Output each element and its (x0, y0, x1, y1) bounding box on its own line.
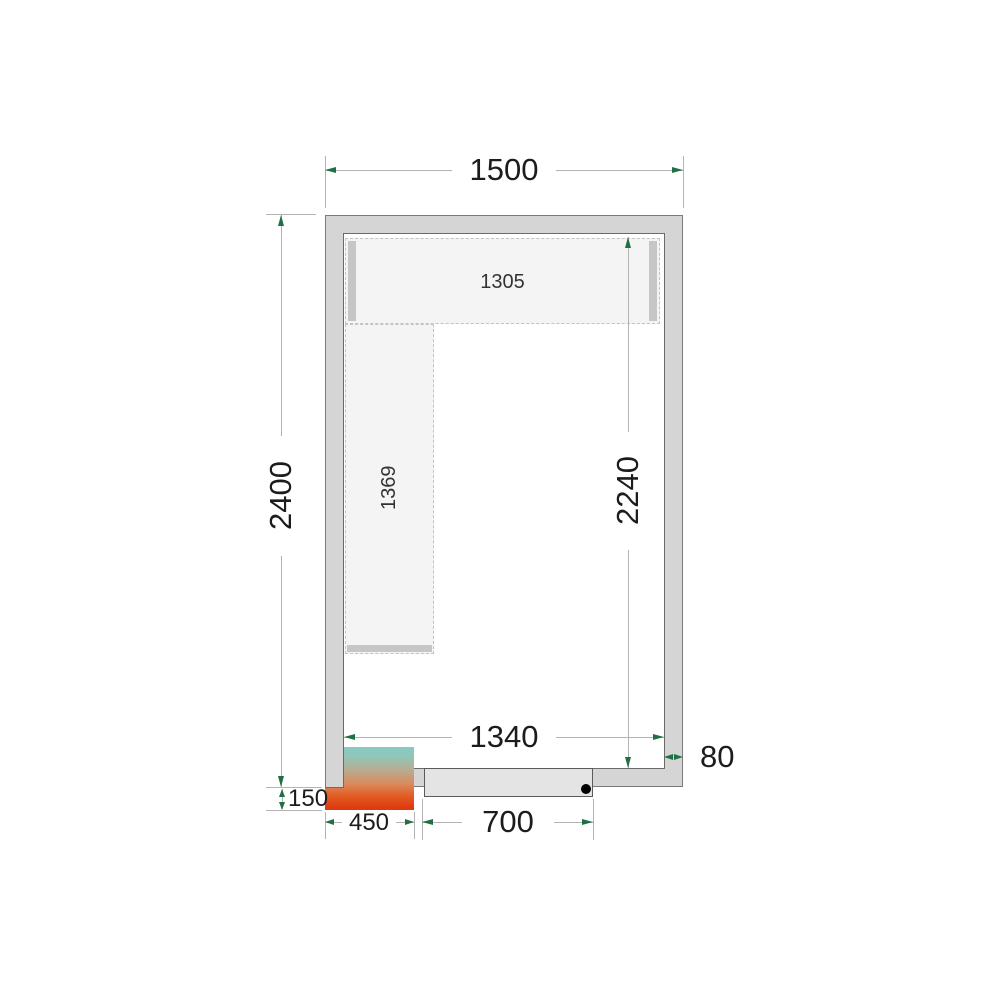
arrow-down-icon (625, 757, 631, 768)
door-leaf (424, 768, 593, 797)
ext-line-450-left (325, 812, 326, 839)
arrow-left-icon (325, 819, 334, 825)
arrow-right-icon (582, 819, 593, 825)
dim-label-inner-width: 1340 (452, 720, 556, 754)
ext-line-700-right (593, 799, 594, 840)
dim-label-outer-depth: 2400 (262, 436, 300, 556)
shelf-left-length-label: 1369 (375, 423, 403, 553)
ext-line-450-right (414, 812, 415, 839)
arrow-down-icon (278, 776, 284, 787)
shelf-left: 1369 (345, 324, 434, 654)
dim-label-unit-width: 450 (342, 810, 396, 836)
arrow-right-icon (653, 734, 664, 740)
shelf-top-length-label: 1305 (346, 271, 659, 293)
arrow-left-icon (325, 167, 336, 173)
shelf-left-length-text: 1369 (378, 466, 400, 511)
arrow-up-icon (278, 215, 284, 226)
arrow-right-icon (672, 167, 683, 173)
ext-line-1500-right (683, 156, 684, 208)
arrow-left-icon (422, 819, 433, 825)
dim-label-unit-protrusion: 150 (288, 786, 328, 812)
ext-line-1500-left (325, 156, 326, 208)
dim-label-outer-width: 1500 (452, 153, 556, 187)
shelf-top: 1305 (345, 238, 660, 324)
cold-room-plan: 1500 2400 1305 1369 2240 1340 80 (0, 0, 1000, 1000)
dim-label-wall-thickness: 80 (700, 740, 734, 774)
ext-line-2400-top (266, 214, 316, 215)
shelf-support-bottom (347, 645, 432, 652)
dim-label-inner-depth: 2240 (609, 432, 647, 550)
dim-text-outer-depth: 2400 (264, 462, 298, 531)
arrow-down-icon (279, 802, 285, 810)
dim-text-inner-depth: 2240 (611, 457, 645, 526)
dim-label-door-width: 700 (462, 805, 554, 839)
arrow-right-icon (674, 754, 683, 760)
arrow-up-icon (279, 789, 285, 797)
arrow-right-icon (405, 819, 414, 825)
arrow-left-icon (344, 734, 355, 740)
arrow-left-icon (664, 754, 673, 760)
door-handle-dot (581, 784, 591, 794)
wall-over-cooling-unit (325, 746, 344, 788)
arrow-up-icon (625, 237, 631, 248)
